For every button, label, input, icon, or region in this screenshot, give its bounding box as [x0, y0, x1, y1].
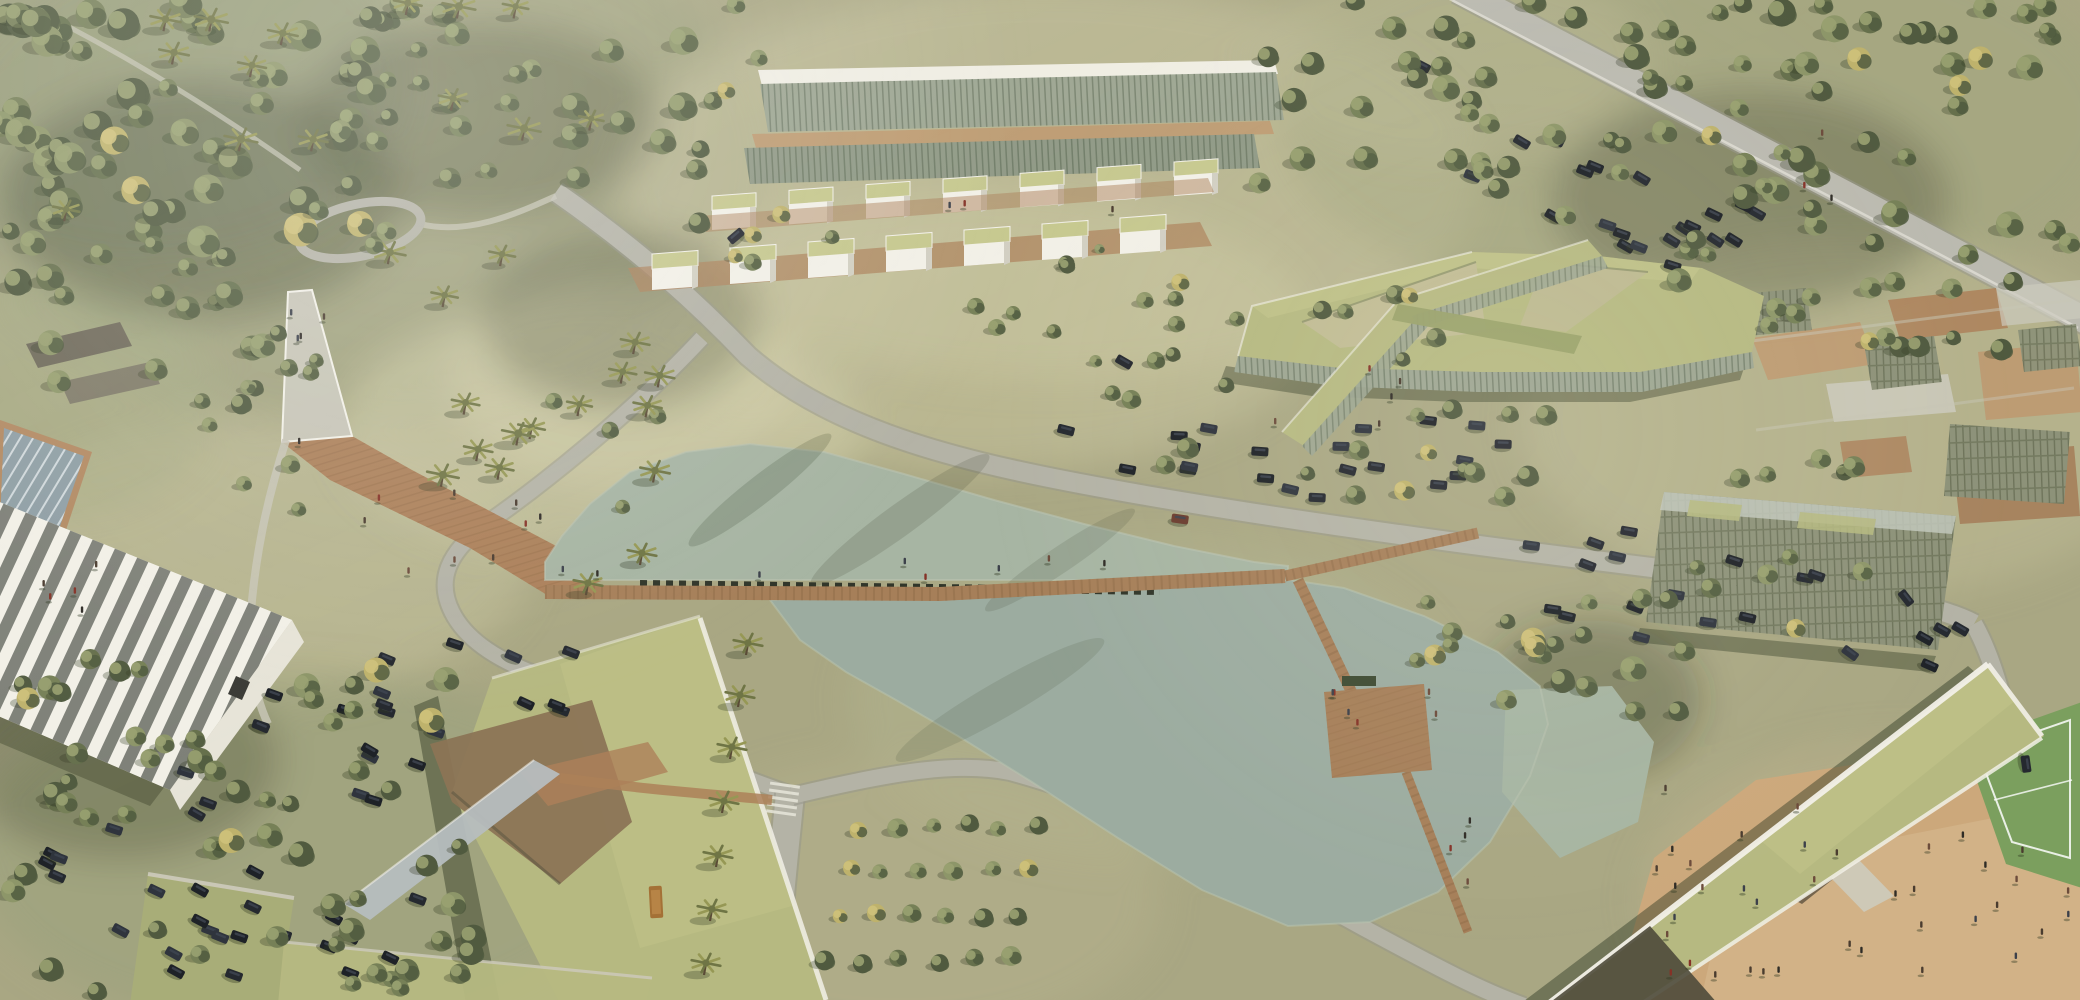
atmosphere-layer [0, 0, 2080, 1000]
scene-canvas [0, 0, 2080, 1000]
aerial-campus-render [0, 0, 2080, 1000]
